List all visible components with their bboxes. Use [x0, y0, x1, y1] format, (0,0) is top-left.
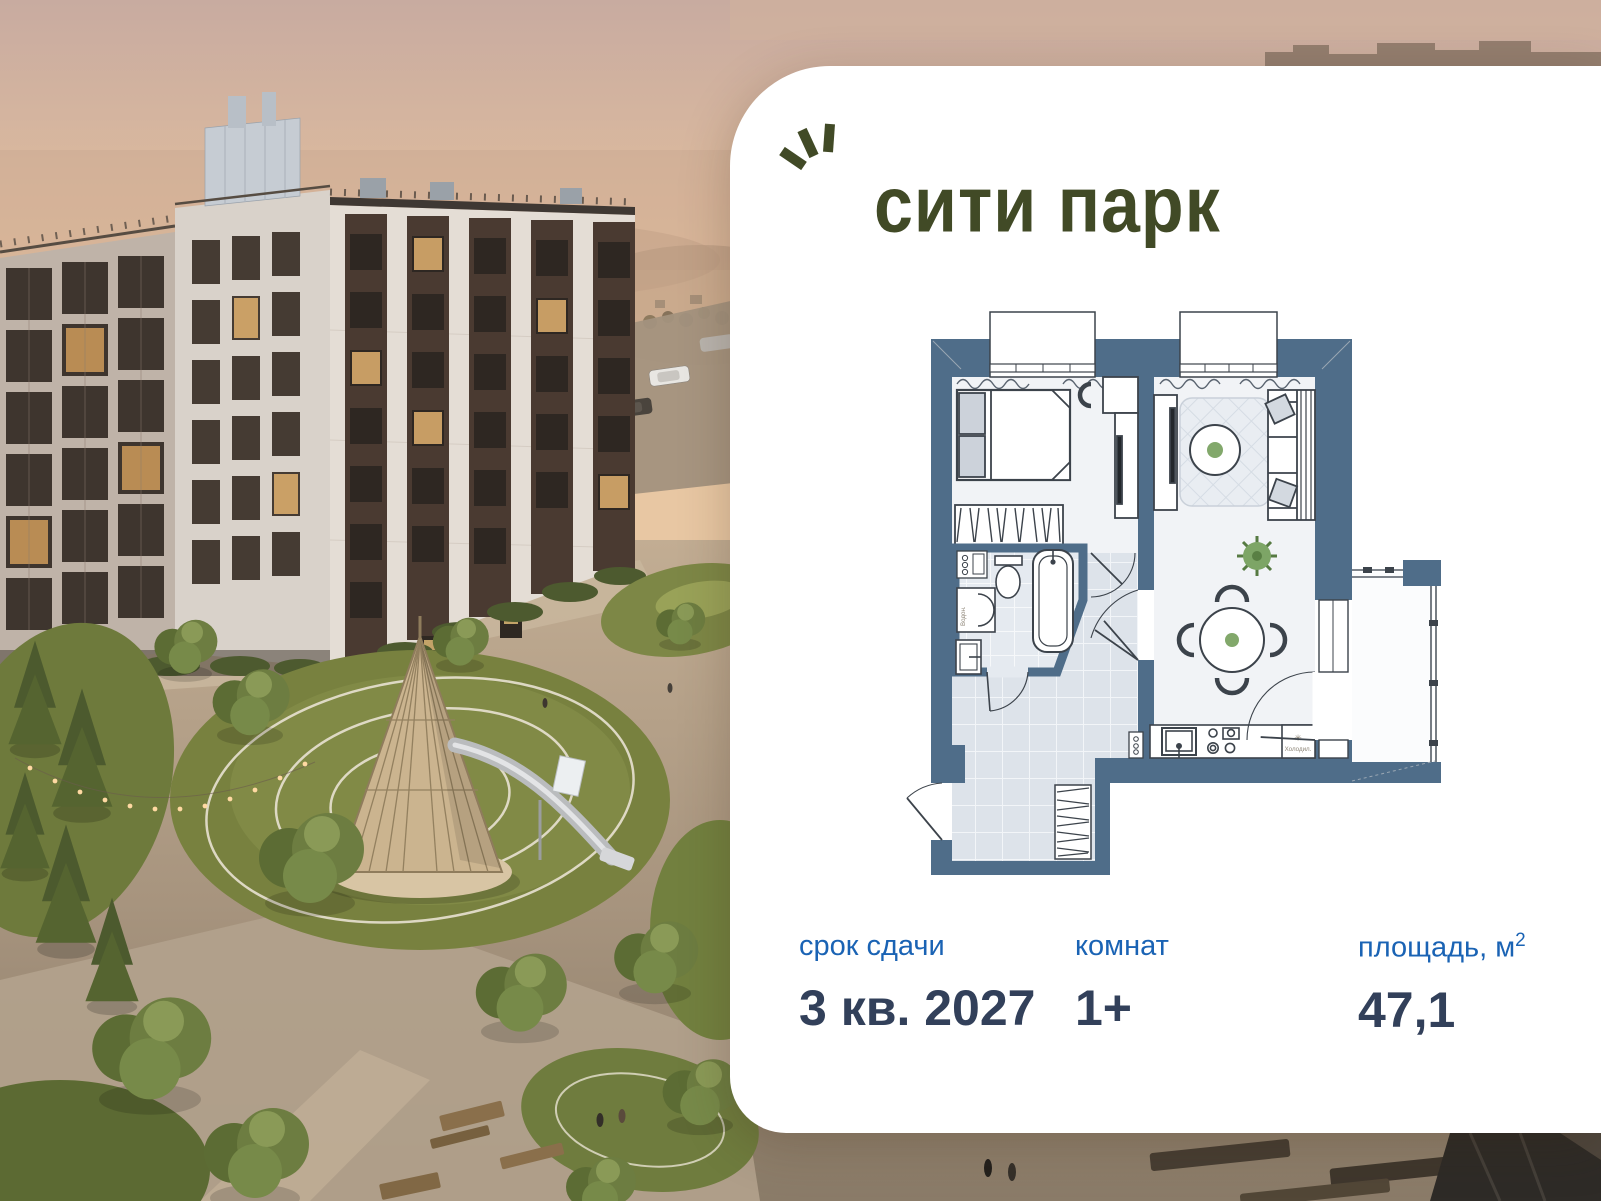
area-label-sup: 2 [1515, 930, 1526, 951]
rooms-label: комнат [1075, 930, 1169, 963]
listing-info: срок сдачи 3 кв. 2027 комнат 1+ площадь,… [730, 930, 1601, 1110]
deadline-value: 3 кв. 2027 [799, 979, 1035, 1037]
kitchen [1129, 725, 1315, 758]
info-rooms: комнат 1+ [1075, 930, 1169, 1037]
fridge-label: Холодил. [1285, 746, 1312, 753]
listing-card[interactable]: сити парк [730, 66, 1601, 1133]
listing-screenshot: сити парк [0, 0, 1601, 1201]
area-value: 47,1 [1358, 981, 1526, 1039]
brand-logo: сити парк [770, 106, 1250, 236]
plant [1237, 536, 1277, 576]
info-area: площадь, м2 47,1 [1358, 930, 1526, 1039]
floorplan: ✳ Холодил. [887, 308, 1455, 880]
balcony-floor [1352, 572, 1433, 762]
brand-logo-text: сити парк [874, 160, 1221, 250]
deadline-label: срок сдачи [799, 930, 1035, 963]
area-label: площадь, м2 [1358, 930, 1526, 965]
heater-label: Водон. [960, 606, 967, 626]
rooms-value: 1+ [1075, 979, 1169, 1037]
hall-wardrobe [1055, 785, 1091, 859]
logo-rays-icon [770, 110, 850, 184]
fridge-symbol: ✳ [1294, 733, 1302, 743]
info-deadline: срок сдачи 3 кв. 2027 [799, 930, 1035, 1037]
